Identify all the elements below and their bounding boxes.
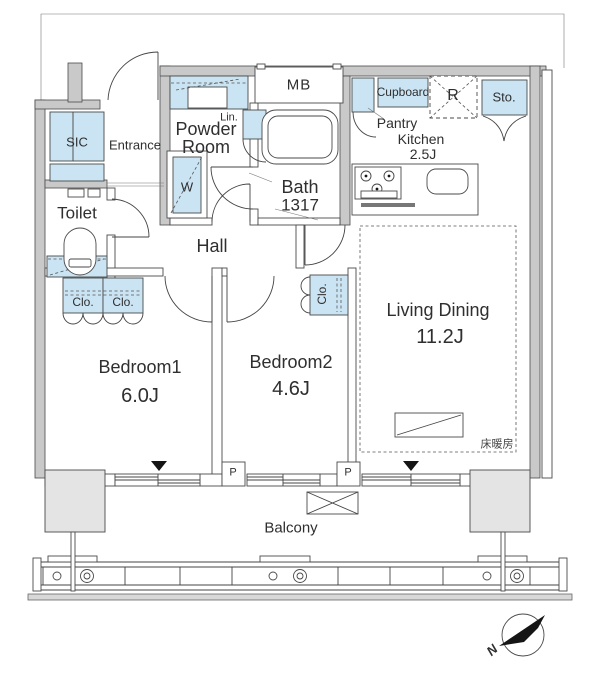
linen-label: Lin. — [220, 113, 238, 124]
vanity — [170, 76, 248, 109]
outer-shell-wall — [542, 70, 552, 478]
powder-room-label-2: Room — [182, 138, 230, 156]
floor-heating-label: 床暖房 — [481, 440, 514, 451]
pantry-size-label: 2.5J — [410, 147, 436, 161]
pipe-space-2-label: P — [344, 468, 351, 479]
bedroom2-size-label: 4.6J — [272, 379, 310, 399]
bedroom1-label: Bedroom1 — [98, 358, 181, 376]
bathtub — [262, 110, 338, 164]
left-pillar — [45, 470, 105, 532]
bedroom2-closet-label: Clo. — [316, 283, 328, 304]
pantry-door — [353, 112, 376, 137]
living-dining-size-label: 11.2J — [416, 327, 463, 347]
bath-label: Bath — [281, 178, 318, 196]
bedroom2-label: Bedroom2 — [249, 353, 332, 371]
sink — [427, 169, 468, 194]
bedroom1-closet-left-label: Clo. — [72, 296, 93, 308]
balcony-railing — [33, 532, 567, 591]
bedroom2-door — [227, 276, 274, 322]
hall-label: Hall — [196, 237, 227, 255]
compass-icon — [499, 614, 545, 656]
cupboard-label: Cupboard — [377, 86, 430, 98]
balcony-slab-edge — [28, 594, 572, 600]
right-pillar — [470, 470, 530, 532]
grill — [361, 191, 397, 198]
toilet-door — [112, 199, 149, 237]
bedroom2-window — [247, 474, 320, 486]
sic-label: SIC — [66, 136, 88, 149]
bath-size-label: 1317 — [281, 197, 319, 214]
refrigerator-label: R — [447, 88, 459, 104]
bedroom1-closet-right-label: Clo. — [112, 296, 133, 308]
floor-plan: SIC Entrance Toilet Powder Room Lin. W M… — [0, 0, 600, 690]
porch-wall-stub — [68, 63, 82, 102]
pipe-space-1-label: P — [229, 468, 236, 479]
windows — [115, 461, 460, 486]
living-dining-label: Living Dining — [386, 301, 489, 319]
entrance-door — [108, 52, 158, 100]
entrance-label: Entrance — [109, 139, 161, 152]
washer-label: W — [181, 181, 193, 194]
evacuation-hatch — [307, 492, 358, 514]
counter-edge — [361, 203, 415, 207]
bedroom1-door — [165, 276, 212, 322]
window-marker-triangle — [151, 461, 167, 471]
tv-counter — [395, 413, 463, 437]
toilet-label: Toilet — [57, 205, 97, 222]
bedroom1-window — [115, 474, 200, 486]
pantry-cabinet — [352, 78, 374, 112]
storage-label: Sto. — [492, 91, 515, 104]
toilet-fixture — [47, 189, 107, 277]
pantry-label-1: Pantry — [377, 116, 417, 130]
balcony-label: Balcony — [264, 521, 317, 536]
meter-box-label: MB — [287, 78, 312, 93]
living-dining-door — [305, 225, 345, 265]
entrance-step-line — [107, 183, 164, 186]
window-marker-triangle — [403, 461, 419, 471]
kitchen-counter — [352, 164, 478, 215]
storage-doors — [483, 116, 526, 141]
pantry-label-2: Kitchen — [398, 132, 445, 146]
bedroom1-size-label: 6.0J — [121, 386, 159, 406]
living-window — [362, 474, 460, 486]
